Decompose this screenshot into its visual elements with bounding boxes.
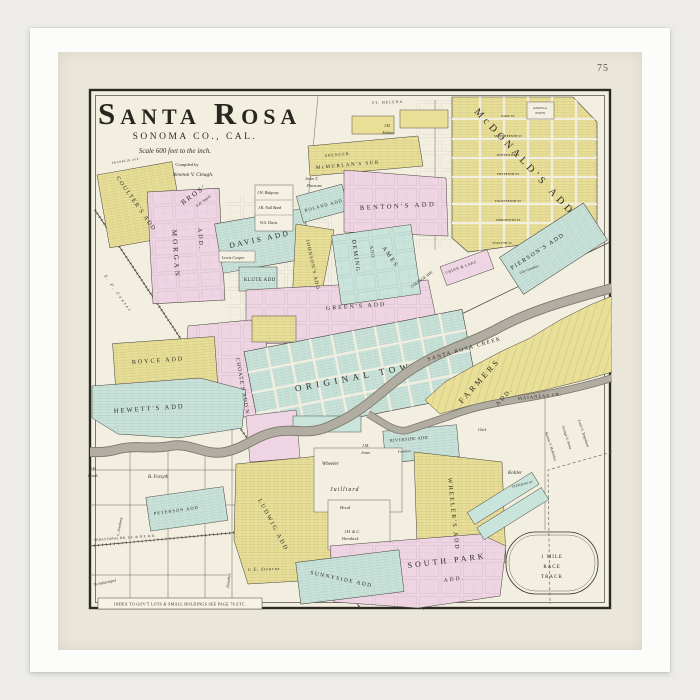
santa-rosa-map: ORIGINAL TOWN	[88, 88, 612, 612]
map-compiler: Newton V. Cleugh.	[172, 172, 214, 178]
art-print: 75	[0, 0, 700, 700]
index-note: INDEX TO GOV'T LOTS & SMALL HOLDINGS SEE…	[114, 602, 246, 607]
map-title: Santa Rosa	[98, 96, 301, 131]
kohler-label: Kohler	[507, 471, 522, 476]
street-thirteenth: THIRTEENTH ST	[496, 218, 521, 222]
addition-deming	[332, 224, 421, 304]
race-track-label-2: RACE	[543, 565, 560, 570]
ws-davis-label: W.S. Davis	[260, 220, 278, 225]
abshire-label-1: J.H.	[384, 123, 391, 128]
yellow-block-b	[400, 110, 448, 128]
street-seventeenth: SEVENTEENTH ST	[494, 134, 522, 138]
hood-label: Hood	[339, 505, 351, 510]
clark-label: Clark	[478, 428, 487, 432]
klute-label: KLUTE ADD	[244, 278, 276, 283]
angela-label-2: TOWN	[535, 111, 546, 115]
race-track-label-1: 1 MILE	[541, 555, 563, 560]
ridgway-label: J.W. Ridgway	[257, 190, 279, 195]
jones-label-2: Jones	[361, 450, 371, 455]
street-twelfth: TWELFTH ST	[492, 241, 512, 245]
map-scale: Scale 600 feet to the inch.	[139, 147, 212, 155]
juilliard-label: Juilliard	[330, 487, 359, 493]
parsons-label-2: Parsons	[306, 183, 322, 188]
street-sixteenth: SIXTEENTH ST	[497, 153, 520, 157]
page-number: 75	[597, 63, 609, 74]
brush-label-1: J.H.	[90, 466, 97, 471]
yellow-block-c-lots	[252, 316, 296, 342]
race-track-label-3: TRACK	[541, 575, 563, 580]
parsons-label-1: John T.	[305, 176, 318, 181]
hornbeck-label-2: Hornbeck	[341, 536, 359, 541]
nall-label: J.B. Nall Bank	[258, 205, 282, 210]
abshire-label-2: Abshire	[381, 130, 395, 135]
street-park: PARK ST	[501, 114, 514, 118]
angela-label-1: ANGELA	[533, 106, 547, 110]
map-subtitle-county: SONOMA CO., CAL.	[133, 132, 258, 142]
hornbeck-label-1: J.H. & C.	[344, 529, 360, 534]
jones-label-1: J.M.	[362, 443, 369, 448]
wheeler-label: Wheeler	[322, 462, 339, 467]
addition-morgan	[147, 188, 225, 304]
cooper-label: Lewis Cooper	[221, 255, 245, 260]
brush-label-2: Brush	[88, 473, 98, 478]
street-fourteenth: FOURTEENTH ST	[495, 199, 521, 203]
street-fifteenth: FIFTEENTH ST	[497, 172, 519, 176]
map-compiled-by: Compiled by	[175, 162, 199, 167]
forsyth-label: B. Forsyth	[148, 475, 169, 480]
